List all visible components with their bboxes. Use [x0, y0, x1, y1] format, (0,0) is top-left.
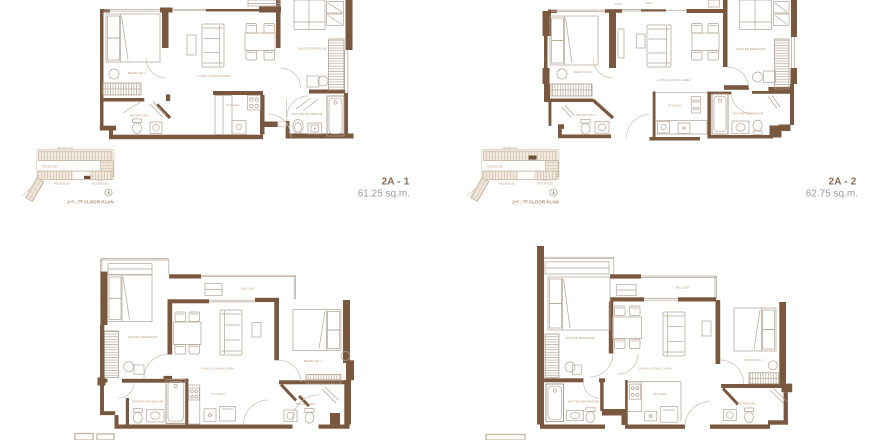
- svg-text:RESIDENCES: RESIDENCES: [537, 184, 553, 186]
- svg-text:BEDROOM 1: BEDROOM 1: [128, 71, 146, 75]
- svg-text:RESIDENCES: RESIDENCES: [499, 184, 515, 186]
- svg-text:LIVING & DINING AREA: LIVING & DINING AREA: [197, 74, 231, 78]
- svg-text:MASTER BATHROOM: MASTER BATHROOM: [133, 400, 164, 404]
- svg-text:MASTER BEDROOM: MASTER BEDROOM: [298, 47, 328, 51]
- svg-text:RESIDENCES: RESIDENCES: [57, 148, 73, 150]
- svg-text:2A - 2: 2A - 2: [828, 177, 856, 188]
- svg-text:BEDROOM 1: BEDROOM 1: [304, 359, 322, 363]
- svg-text:MASTER BATHROOM: MASTER BATHROOM: [292, 112, 323, 116]
- svg-text:BALCONY: BALCONY: [676, 286, 690, 290]
- svg-text:MASTER BEDROOM: MASTER BEDROOM: [737, 47, 767, 51]
- svg-text:RESIDENCES: RESIDENCES: [54, 184, 70, 186]
- svg-text:2ⁿᵈ - 7ᵗʱ FLOOR PLAN: 2ⁿᵈ - 7ᵗʱ FLOOR PLAN: [512, 200, 559, 205]
- svg-text:MASTER BATHROOM: MASTER BATHROOM: [568, 399, 599, 403]
- svg-text:BEDROOM 1: BEDROOM 1: [574, 70, 592, 74]
- svg-text:RESIDENCES: RESIDENCES: [502, 148, 518, 150]
- svg-text:BEDROOM 1: BEDROOM 1: [744, 358, 762, 362]
- svg-text:MASTER BEDROOM: MASTER BEDROOM: [566, 336, 596, 340]
- svg-text:BATHROOM 1: BATHROOM 1: [577, 113, 597, 117]
- svg-text:KITCHEN: KITCHEN: [653, 392, 666, 396]
- svg-text:LIVING & DINING AREA: LIVING & DINING AREA: [638, 367, 672, 371]
- svg-text:RESIDENCES: RESIDENCES: [42, 167, 58, 169]
- svg-text:62.75 sq.m.: 62.75 sq.m.: [806, 189, 858, 200]
- svg-text:KITCHEN: KITCHEN: [668, 104, 681, 108]
- svg-text:BATHROOM 1: BATHROOM 1: [130, 114, 150, 118]
- svg-text:RESIDENCES: RESIDENCES: [487, 167, 503, 169]
- svg-text:2ⁿᵈ - 7ᵗʱ FLOOR PLAN: 2ⁿᵈ - 7ᵗʱ FLOOR PLAN: [67, 200, 114, 205]
- svg-text:BATHROOM 1: BATHROOM 1: [296, 402, 316, 406]
- svg-text:MASTER BEDROOM: MASTER BEDROOM: [128, 335, 158, 339]
- svg-text:LIVING & DINING AREA: LIVING & DINING AREA: [657, 78, 691, 82]
- svg-text:2A - 1: 2A - 1: [381, 177, 409, 188]
- svg-text:KITCHEN: KITCHEN: [226, 103, 239, 107]
- svg-text:LIVING & DINING AREA: LIVING & DINING AREA: [201, 367, 235, 371]
- svg-text:KITCHEN: KITCHEN: [211, 392, 224, 396]
- svg-text:61.25 sq.m.: 61.25 sq.m.: [358, 189, 410, 200]
- svg-text:RESIDENCES: RESIDENCES: [92, 184, 108, 186]
- svg-text:MASTER BATHROOM: MASTER BATHROOM: [733, 112, 764, 116]
- svg-text:BATHROOM 1: BATHROOM 1: [737, 401, 757, 405]
- svg-text:BALCONY: BALCONY: [241, 287, 255, 291]
